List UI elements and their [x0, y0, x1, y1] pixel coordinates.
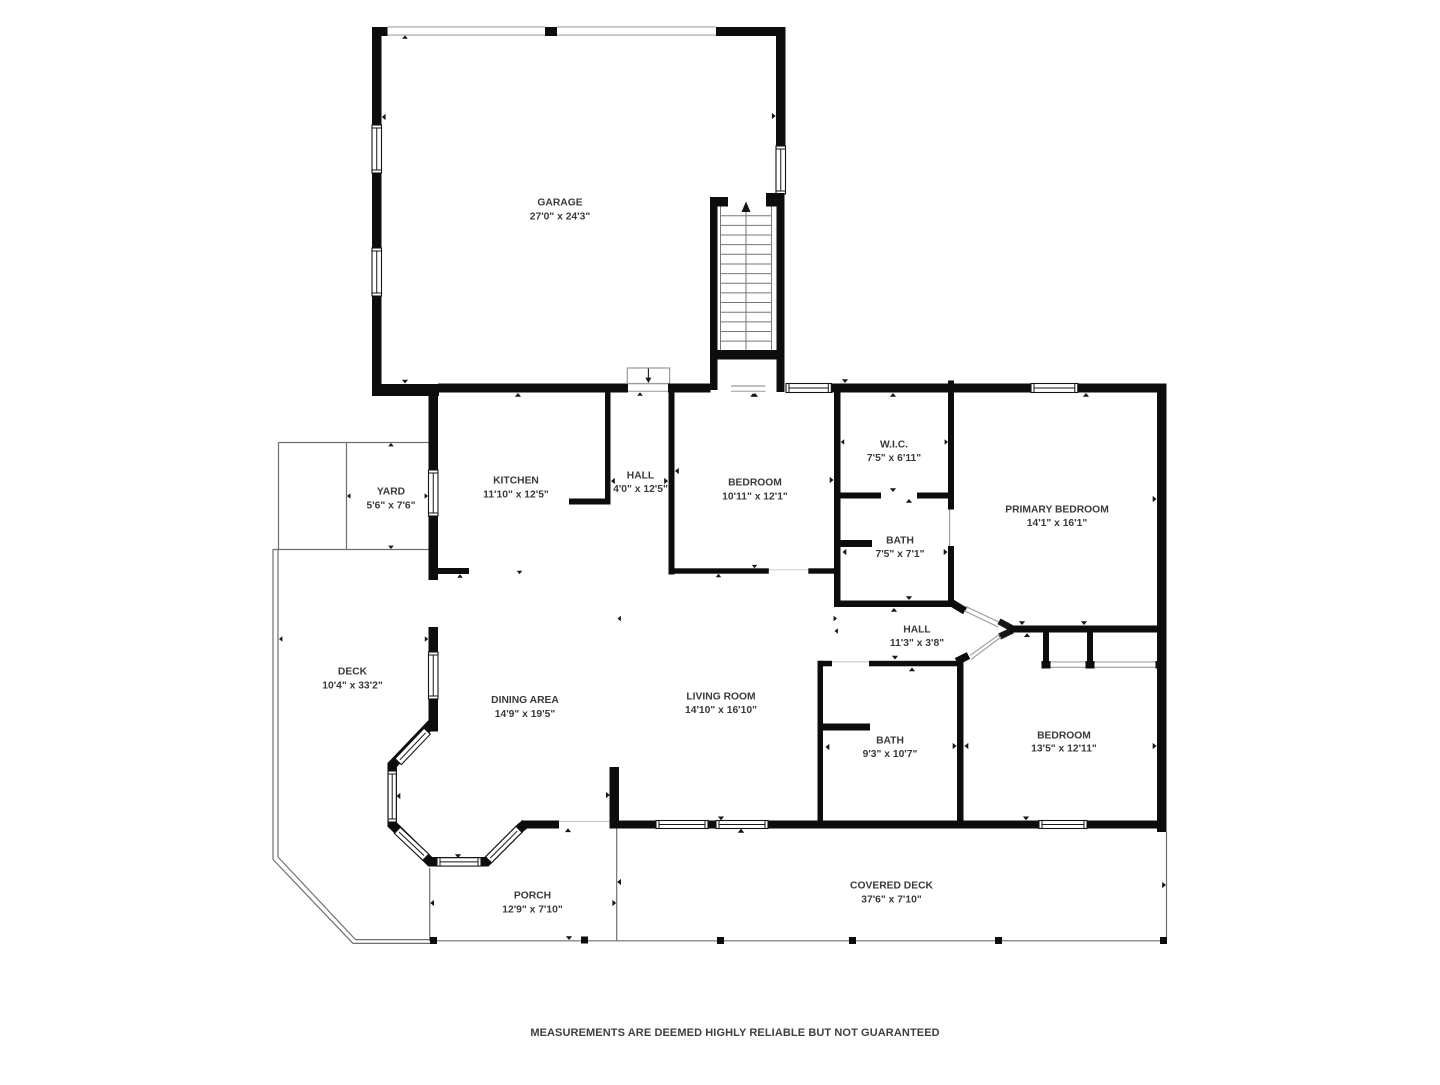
svg-text:GARAGE: GARAGE	[537, 198, 582, 209]
svg-text:37'6" x 7'10": 37'6" x 7'10"	[861, 895, 922, 906]
svg-text:BATH: BATH	[886, 536, 914, 547]
svg-text:KITCHEN: KITCHEN	[493, 476, 539, 487]
svg-text:27'0" x 24'3": 27'0" x 24'3"	[530, 212, 591, 223]
svg-text:14'9" x 19'5": 14'9" x 19'5"	[495, 709, 556, 720]
svg-text:DINING AREA: DINING AREA	[491, 695, 559, 706]
svg-text:11'3" x 3'8": 11'3" x 3'8"	[890, 638, 944, 649]
svg-text:YARD: YARD	[377, 487, 405, 498]
svg-text:4'0" x 12'5": 4'0" x 12'5"	[613, 484, 668, 495]
svg-text:PRIMARY BEDROOM: PRIMARY BEDROOM	[1005, 505, 1109, 516]
svg-text:7'5" x 7'1": 7'5" x 7'1"	[875, 549, 924, 560]
svg-text:BEDROOM: BEDROOM	[728, 478, 782, 489]
svg-text:13'5" x 12'11": 13'5" x 12'11"	[1031, 744, 1097, 755]
svg-text:DECK: DECK	[338, 667, 368, 678]
svg-text:14'10" x 16'10": 14'10" x 16'10"	[685, 705, 757, 716]
svg-text:PORCH: PORCH	[514, 891, 551, 902]
svg-text:W.I.C.: W.I.C.	[880, 440, 908, 451]
svg-text:7'5" x 6'11": 7'5" x 6'11"	[867, 453, 921, 464]
svg-text:10'4" x 33'2": 10'4" x 33'2"	[322, 681, 383, 692]
svg-text:5'6" x 7'6": 5'6" x 7'6"	[366, 501, 415, 512]
svg-text:MEASUREMENTS ARE DEEMED HIGHLY: MEASUREMENTS ARE DEEMED HIGHLY RELIABLE …	[530, 1027, 939, 1039]
svg-text:11'10" x 12'5": 11'10" x 12'5"	[483, 490, 549, 501]
svg-text:10'11" x 12'1": 10'11" x 12'1"	[722, 492, 788, 503]
svg-text:HALL: HALL	[903, 625, 930, 636]
svg-text:14'1" x 16'1": 14'1" x 16'1"	[1027, 518, 1088, 529]
svg-text:BATH: BATH	[876, 736, 904, 747]
svg-text:COVERED DECK: COVERED DECK	[850, 881, 934, 892]
svg-text:HALL: HALL	[627, 471, 654, 482]
svg-text:BEDROOM: BEDROOM	[1037, 731, 1091, 742]
svg-text:LIVING ROOM: LIVING ROOM	[686, 692, 755, 703]
svg-text:9'3" x 10'7": 9'3" x 10'7"	[863, 749, 918, 760]
svg-text:12'9" x 7'10": 12'9" x 7'10"	[502, 905, 563, 916]
